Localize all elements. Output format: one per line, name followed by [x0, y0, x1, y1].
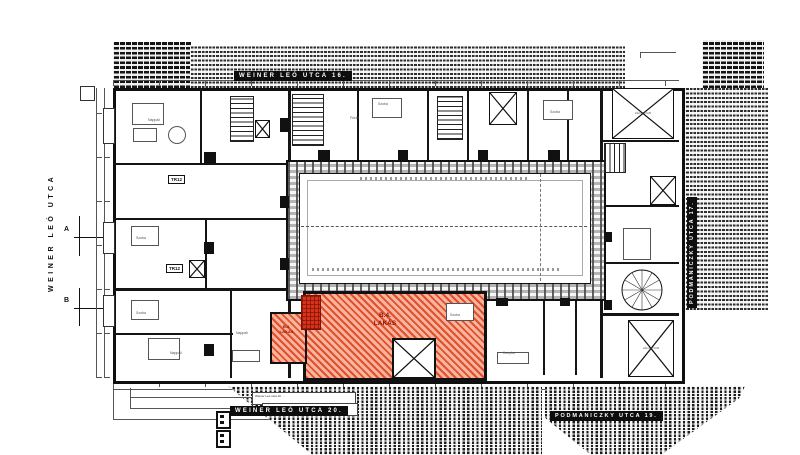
- shaft-block-7: [478, 150, 488, 160]
- radiator-block: [301, 295, 321, 330]
- bed-5: [372, 98, 402, 118]
- sofa-1: [133, 128, 157, 142]
- shaft-block-15: [204, 344, 214, 356]
- apartment-b3-label: B.3. LAKÁS: [270, 324, 303, 334]
- tr12-box-lower: TR12: [166, 264, 183, 273]
- wall-left-4: [113, 333, 233, 335]
- wall-right-4: [600, 313, 679, 316]
- section-line-b: [79, 288, 80, 326]
- section-marker-a: A: [64, 226, 69, 233]
- room-label: Fürdő: [350, 116, 359, 120]
- sofa-2: [232, 350, 260, 362]
- wall-top-v3: [467, 88, 469, 163]
- stair-right-wing: [604, 143, 626, 173]
- shaft-block-14: [204, 242, 214, 254]
- note-leader-stem: [130, 388, 131, 408]
- wall-left-v1: [200, 88, 202, 163]
- table-round-1: [168, 126, 186, 144]
- utility-symbol-dot: [220, 415, 224, 418]
- street-label-bottom: WEINER LEÓ UTCA 20.: [230, 406, 348, 416]
- shaft-block-3: [280, 258, 289, 270]
- dimension-chain-left: [96, 88, 102, 378]
- stair-top-wing: [437, 96, 463, 140]
- wall-left-v2: [205, 218, 207, 290]
- elevator-right: [650, 176, 676, 205]
- table-set-right: [623, 228, 651, 260]
- shaft-block-1: [280, 118, 289, 132]
- shaft-block-10: [604, 300, 612, 310]
- utility-symbol-dot: [220, 434, 224, 437]
- street-label-left: WEINER LEÓ UTCA: [48, 174, 55, 292]
- wall-left-v3: [230, 291, 232, 378]
- section-marker-b: B: [64, 297, 69, 304]
- courtyard-centerline-h: [301, 226, 587, 227]
- light-well-top: LÉGUDVAR: [612, 88, 674, 139]
- utility-symbol-1: [216, 411, 231, 429]
- bed-3: [131, 300, 159, 320]
- section-line-a: [79, 216, 80, 256]
- wall-top-v1: [357, 88, 359, 163]
- shaft-block-11: [496, 298, 508, 306]
- courtyard-dim-text-top: [360, 177, 530, 180]
- survey-point-symbol: [80, 86, 95, 101]
- shaft-block-5: [318, 150, 330, 160]
- apartment-b3-name: LAKÁS: [270, 329, 303, 334]
- light-well-top-label: LÉGUDVAR: [613, 111, 673, 115]
- room-label: Szoba: [378, 102, 388, 106]
- stair-left-wing: [230, 96, 254, 142]
- room-label: Szoba: [136, 236, 146, 240]
- apartment-b4-name: LAKÁS: [345, 320, 425, 328]
- balcony-bay-1: [103, 108, 115, 144]
- utility-symbol-dot: [220, 421, 224, 424]
- room-label: Nappali: [148, 118, 160, 122]
- wall-bottom-v3: [575, 296, 577, 375]
- wall-top-v4: [527, 88, 529, 163]
- room-label: Nappali: [170, 351, 182, 355]
- courtyard-centerline-v: [540, 174, 541, 281]
- room-label: Szoba: [450, 313, 460, 317]
- room-label: Szoba: [550, 110, 560, 114]
- elevator-top: [489, 92, 517, 125]
- shaft-block-12: [560, 298, 570, 306]
- room-label: Konyha: [503, 351, 515, 355]
- wall-left-2: [113, 218, 288, 220]
- apartment-b4-id: B.4.: [345, 312, 425, 320]
- wall-left-1: [113, 163, 288, 165]
- shaft-block-6: [398, 150, 408, 160]
- balcony-bay-3: [103, 295, 115, 327]
- annotation-note-1-text: Weiner Leó utca 20. …: [255, 394, 286, 398]
- shaft-top-wing: [255, 120, 270, 138]
- wall-bottom-v2: [543, 296, 545, 375]
- courtyard-dim-text-bottom: [312, 268, 562, 271]
- room-label: Nappali: [236, 331, 248, 335]
- street-label-right: PODMANICZKY UTCA 17.: [687, 197, 697, 308]
- street-label-bottom-right: PODMANICZKY UTCA 19.: [550, 411, 663, 421]
- wall-left-3: [113, 288, 288, 291]
- shaft-block-8: [548, 150, 560, 160]
- light-well-bottom-label: LÉGUDVAR: [629, 346, 673, 350]
- street-label-top: WEINER LEÓ UTCA 16.: [234, 71, 352, 81]
- note-leader-1: [130, 397, 252, 398]
- bed-7: [446, 303, 474, 321]
- wall-top-v2: [427, 88, 429, 163]
- shaft-block-9: [604, 232, 612, 242]
- light-well-bottom: LÉGUDVAR: [628, 320, 674, 377]
- dimension-chain-top: [113, 80, 679, 86]
- dimension-top-right: [640, 52, 676, 58]
- apartment-b4-label: B.4. LAKÁS: [345, 312, 425, 328]
- utility-symbol-2: [216, 430, 231, 448]
- shaft-left-wing: [189, 260, 205, 278]
- utility-symbol-dot: [220, 440, 224, 443]
- bed-4: [148, 338, 180, 360]
- shaft-block-13: [204, 152, 216, 163]
- tr12-box-upper: TR12: [168, 175, 185, 184]
- floor-plan-canvas: B.4. LAKÁS B.3. LAKÁS LÉGUDVAR LÉGUDVAR: [0, 0, 800, 455]
- elevator-central: [392, 338, 436, 379]
- room-label: Szoba: [136, 311, 146, 315]
- shaft-block-2: [280, 196, 289, 208]
- wall-right-3: [600, 262, 679, 264]
- spiral-stair: [616, 268, 668, 312]
- wall-right-1: [600, 140, 679, 142]
- stair-core: [292, 94, 324, 146]
- courtyard-inner-line: [307, 180, 583, 276]
- balcony-bay-2: [103, 222, 115, 254]
- wall-right-2: [600, 205, 679, 207]
